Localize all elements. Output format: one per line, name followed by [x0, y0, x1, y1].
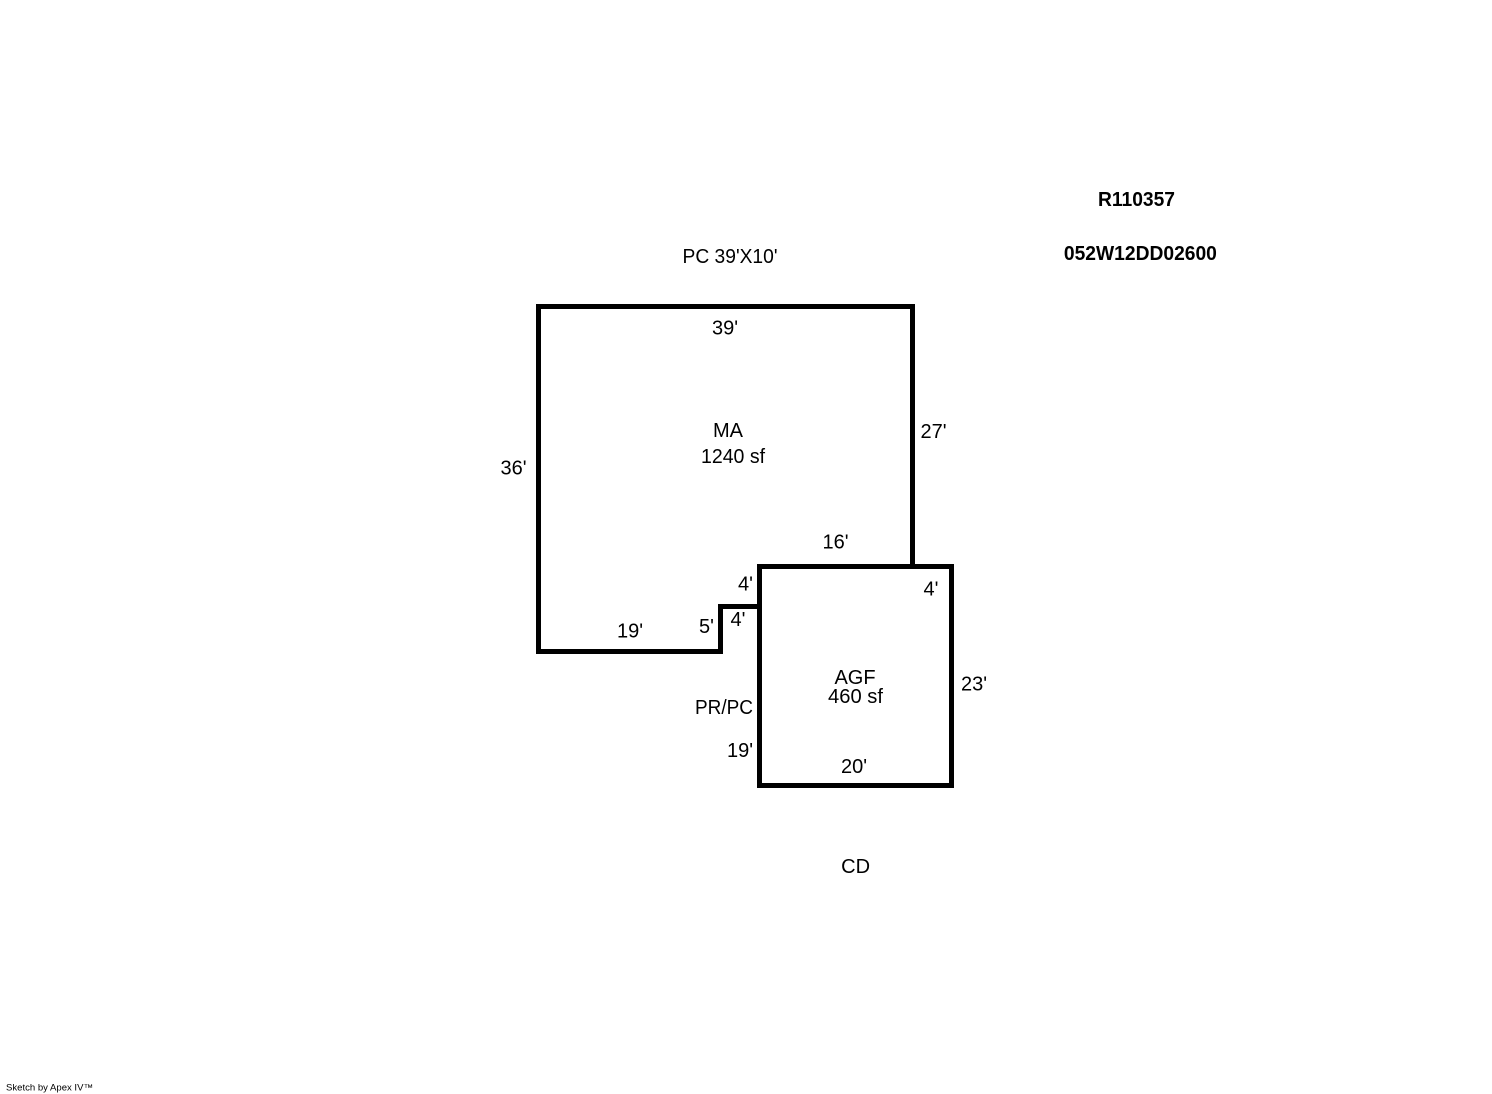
svg-text:PC 39'X10': PC 39'X10' [683, 246, 778, 268]
svg-text:39': 39' [712, 318, 738, 340]
svg-text:460 sf: 460 sf [828, 686, 883, 708]
svg-text:CD: CD [841, 856, 870, 878]
svg-text:36': 36' [500, 458, 526, 480]
svg-text:4': 4' [731, 609, 746, 631]
svg-text:19': 19' [727, 740, 753, 762]
svg-text:27': 27' [920, 421, 946, 443]
svg-text:5': 5' [699, 616, 714, 638]
svg-text:20': 20' [841, 756, 867, 778]
svg-text:23': 23' [961, 674, 987, 696]
svg-text:1240 sf: 1240 sf [701, 446, 765, 468]
svg-text:16': 16' [822, 532, 848, 554]
svg-text:Sketch by Apex IV™: Sketch by Apex IV™ [6, 1083, 93, 1093]
svg-text:4': 4' [738, 574, 753, 596]
svg-text:19': 19' [617, 621, 643, 643]
svg-text:MA: MA [713, 420, 744, 442]
svg-text:R110357: R110357 [1098, 189, 1175, 211]
svg-text:052W12DD02600: 052W12DD02600 [1064, 243, 1217, 265]
svg-text:PR/PC: PR/PC [695, 697, 753, 719]
svg-text:4': 4' [924, 579, 939, 601]
